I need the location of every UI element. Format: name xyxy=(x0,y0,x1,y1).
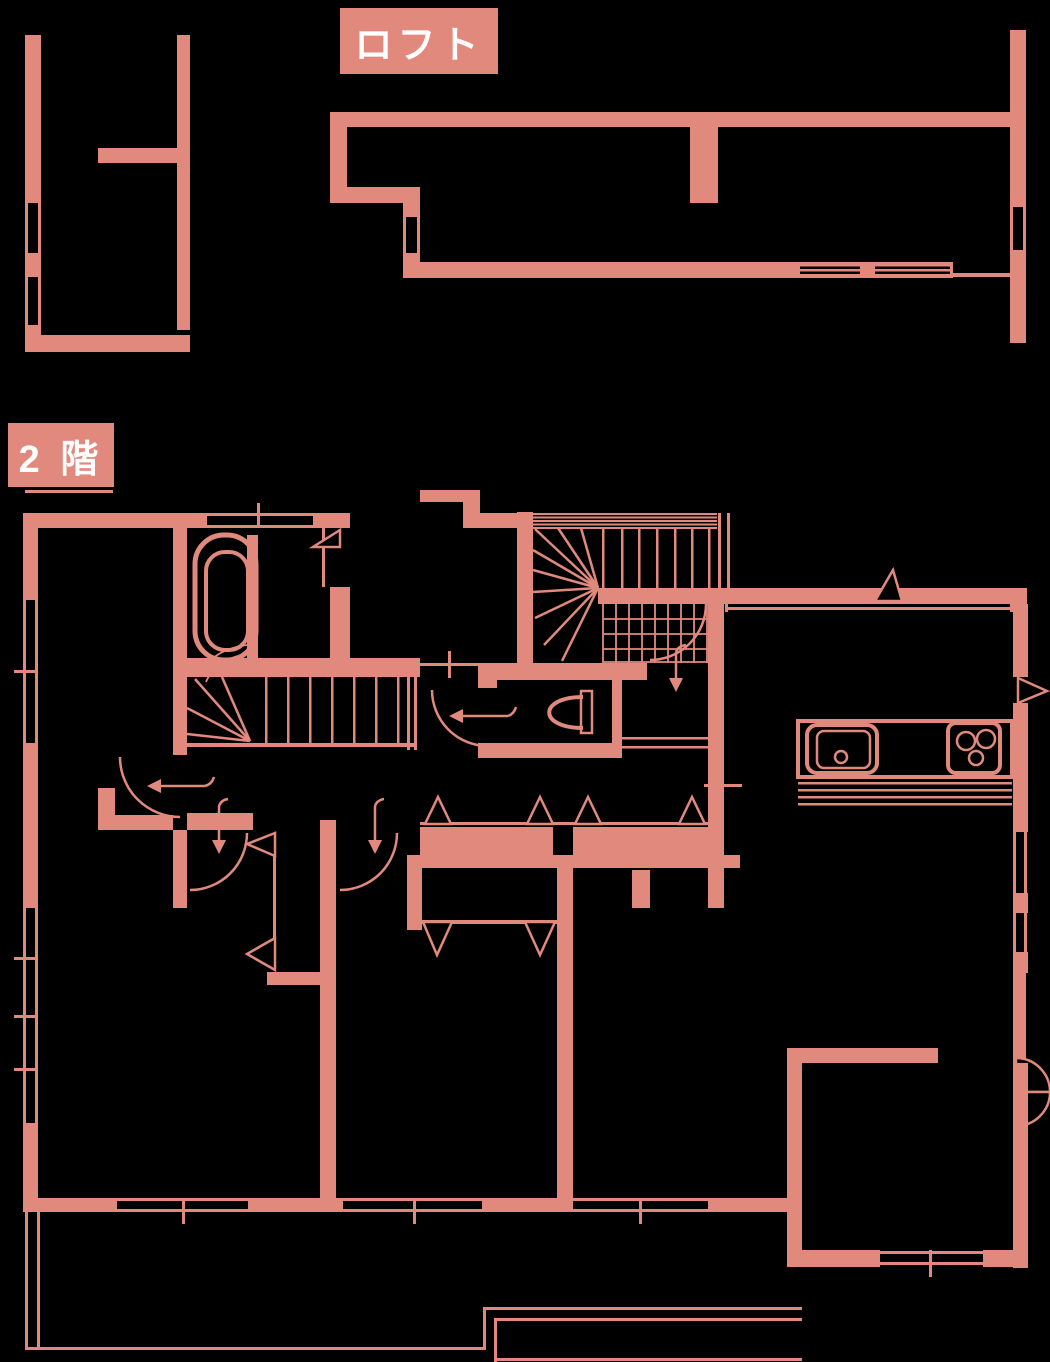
wall xyxy=(173,830,187,908)
arrow-head xyxy=(449,709,463,723)
wall xyxy=(802,1250,880,1267)
window xyxy=(1013,832,1016,893)
wall xyxy=(478,680,497,688)
window xyxy=(38,203,41,253)
stove-burner xyxy=(957,732,975,750)
arrow-hook xyxy=(205,777,214,786)
wall xyxy=(1010,250,1026,343)
stair-rail xyxy=(727,513,730,590)
wall xyxy=(787,1048,802,1267)
balcony-right xyxy=(787,1048,1028,1277)
stair-tread xyxy=(656,528,659,588)
arrow-head xyxy=(147,779,161,793)
sliding-door-line xyxy=(800,267,860,270)
wall xyxy=(1013,973,1026,1063)
wall xyxy=(1013,604,1028,677)
window-mullion xyxy=(182,1198,185,1224)
winder-treads xyxy=(533,528,598,661)
window xyxy=(1013,913,1016,952)
window-mullion xyxy=(14,670,38,673)
wall xyxy=(177,35,190,330)
stair-rail xyxy=(718,513,721,590)
counter-line xyxy=(798,803,1012,806)
wall xyxy=(1013,703,1028,832)
stair-tread xyxy=(621,528,624,588)
window xyxy=(38,277,41,325)
stair-rail xyxy=(407,677,410,750)
sliding-door-line xyxy=(800,272,860,275)
wall xyxy=(330,587,350,663)
stair-tread xyxy=(353,677,356,743)
window-mullion xyxy=(929,1250,932,1277)
wall xyxy=(1013,1063,1028,1268)
stair-tread xyxy=(533,513,717,515)
sink-drain xyxy=(835,751,847,763)
door-swing-mark xyxy=(313,530,340,547)
window xyxy=(1023,207,1026,250)
sliding-door-line xyxy=(875,272,950,275)
arrow-hook xyxy=(508,707,516,716)
window-mullion xyxy=(14,1068,38,1071)
bathtub-inner xyxy=(206,552,248,650)
stair-tread xyxy=(638,528,641,588)
window xyxy=(1024,913,1027,952)
stair-tread xyxy=(375,677,378,743)
stair-tread xyxy=(287,677,290,743)
wall xyxy=(407,860,422,930)
hallway-and-closets xyxy=(98,757,740,1198)
wall xyxy=(598,588,1027,604)
stair-tread xyxy=(331,677,334,743)
window xyxy=(25,277,28,325)
loft-annex-plan xyxy=(25,35,190,352)
window xyxy=(403,217,406,253)
stair-tread xyxy=(533,517,717,519)
wall xyxy=(482,1198,573,1212)
window xyxy=(343,1198,482,1201)
toilet-room xyxy=(420,651,710,758)
door-swing-arc xyxy=(340,833,397,890)
wall xyxy=(313,513,350,528)
window-mullion xyxy=(257,503,260,528)
stair-tread xyxy=(309,677,312,743)
wall xyxy=(480,513,517,528)
stair-tread xyxy=(533,527,717,529)
stair-tread xyxy=(674,528,677,588)
folding-door-mark xyxy=(525,922,555,955)
veranda-line xyxy=(494,1318,802,1321)
handrail-line xyxy=(612,746,710,749)
wall xyxy=(690,112,718,203)
window-mullion xyxy=(448,651,451,678)
wall xyxy=(23,1198,117,1212)
window xyxy=(25,203,28,253)
wall xyxy=(517,512,533,663)
wall xyxy=(267,972,320,985)
floor-plan-page: ロフト 2 階 xyxy=(0,0,1050,1362)
veranda-line xyxy=(25,1347,486,1350)
floor2-outer-walls xyxy=(14,490,1050,1268)
window-mullion xyxy=(14,957,38,960)
floor-plan-canvas xyxy=(0,0,1050,1362)
wall xyxy=(98,788,115,830)
stair-tread xyxy=(397,677,400,743)
wall xyxy=(632,870,650,908)
arrow-head xyxy=(212,840,226,854)
counter-line xyxy=(798,796,1012,799)
folding-door-mark xyxy=(527,797,553,824)
stair-tread xyxy=(265,677,268,743)
veranda-line xyxy=(483,1307,486,1350)
veranda-line xyxy=(25,1212,28,1350)
wall xyxy=(1013,893,1028,913)
window xyxy=(1010,207,1013,250)
counter-line xyxy=(798,782,1012,785)
folding-door-mark xyxy=(247,833,275,856)
stair-tread xyxy=(602,528,605,588)
stair-tread xyxy=(533,524,717,526)
stair-tread xyxy=(691,528,694,588)
window-mullion xyxy=(639,1198,642,1224)
wall xyxy=(407,855,740,868)
wall xyxy=(983,1250,1028,1267)
wall xyxy=(787,1048,938,1063)
window xyxy=(417,217,420,253)
folding-door-mark xyxy=(575,797,601,824)
loft-plan xyxy=(330,30,1026,343)
wall xyxy=(98,148,177,163)
veranda-line xyxy=(494,1318,497,1362)
window xyxy=(1024,832,1027,893)
wall xyxy=(115,815,173,830)
wall xyxy=(708,1198,787,1212)
opening-line xyxy=(953,273,1010,277)
stair-rail xyxy=(414,677,417,750)
door-swing-arc xyxy=(650,604,706,660)
overhead-cabinet-line xyxy=(1010,604,1013,612)
veranda-line xyxy=(37,1212,40,1350)
folding-door-mark xyxy=(425,797,451,824)
wall xyxy=(23,513,207,528)
wall xyxy=(403,262,953,278)
arrow-hook xyxy=(219,799,228,806)
casement-window-mark xyxy=(1018,678,1047,703)
stair-tread xyxy=(533,520,717,522)
counter-line xyxy=(798,789,1012,792)
wall xyxy=(320,820,336,1198)
winder-treads xyxy=(187,677,250,741)
wall xyxy=(557,855,573,1198)
wall xyxy=(1013,952,1028,973)
casement-window-mark xyxy=(875,570,902,601)
stairwell-grid xyxy=(603,604,710,663)
folding-door-mark xyxy=(423,922,452,955)
kitchen xyxy=(798,721,1012,806)
wall xyxy=(463,490,480,528)
arrow-head xyxy=(669,678,683,692)
window xyxy=(343,1209,482,1212)
wall xyxy=(25,335,190,352)
toilet xyxy=(549,697,583,728)
arrow-hook xyxy=(375,799,384,806)
veranda-outline xyxy=(25,1212,802,1362)
overhead-cabinet-line xyxy=(725,604,728,612)
wall xyxy=(1010,30,1026,207)
stove-burner xyxy=(977,730,995,748)
wall xyxy=(173,528,187,755)
wall xyxy=(25,253,41,277)
wall xyxy=(330,112,1026,127)
folding-door-mark xyxy=(679,797,705,824)
window-mullion xyxy=(413,1198,416,1224)
veranda-line xyxy=(483,1307,802,1310)
window-mullion xyxy=(14,1015,38,1018)
overhead-cabinet-line xyxy=(725,607,1013,610)
stove-burner xyxy=(969,751,983,765)
wall xyxy=(23,513,38,600)
stair-edge xyxy=(187,743,417,747)
door-line xyxy=(322,528,325,587)
eave-line xyxy=(25,490,113,493)
wall xyxy=(248,1198,343,1212)
folding-door-mark xyxy=(247,938,275,970)
wall xyxy=(478,743,612,758)
handrail-line xyxy=(612,737,710,740)
wall xyxy=(478,663,647,680)
wall xyxy=(25,35,41,203)
stair-tread xyxy=(708,528,711,588)
wall xyxy=(403,187,420,217)
window-mullion xyxy=(704,784,742,787)
wall xyxy=(23,743,38,908)
veranda-line xyxy=(494,1358,802,1361)
arrow-head xyxy=(368,840,382,854)
wall xyxy=(420,490,463,502)
sliding-door-line xyxy=(875,267,950,270)
